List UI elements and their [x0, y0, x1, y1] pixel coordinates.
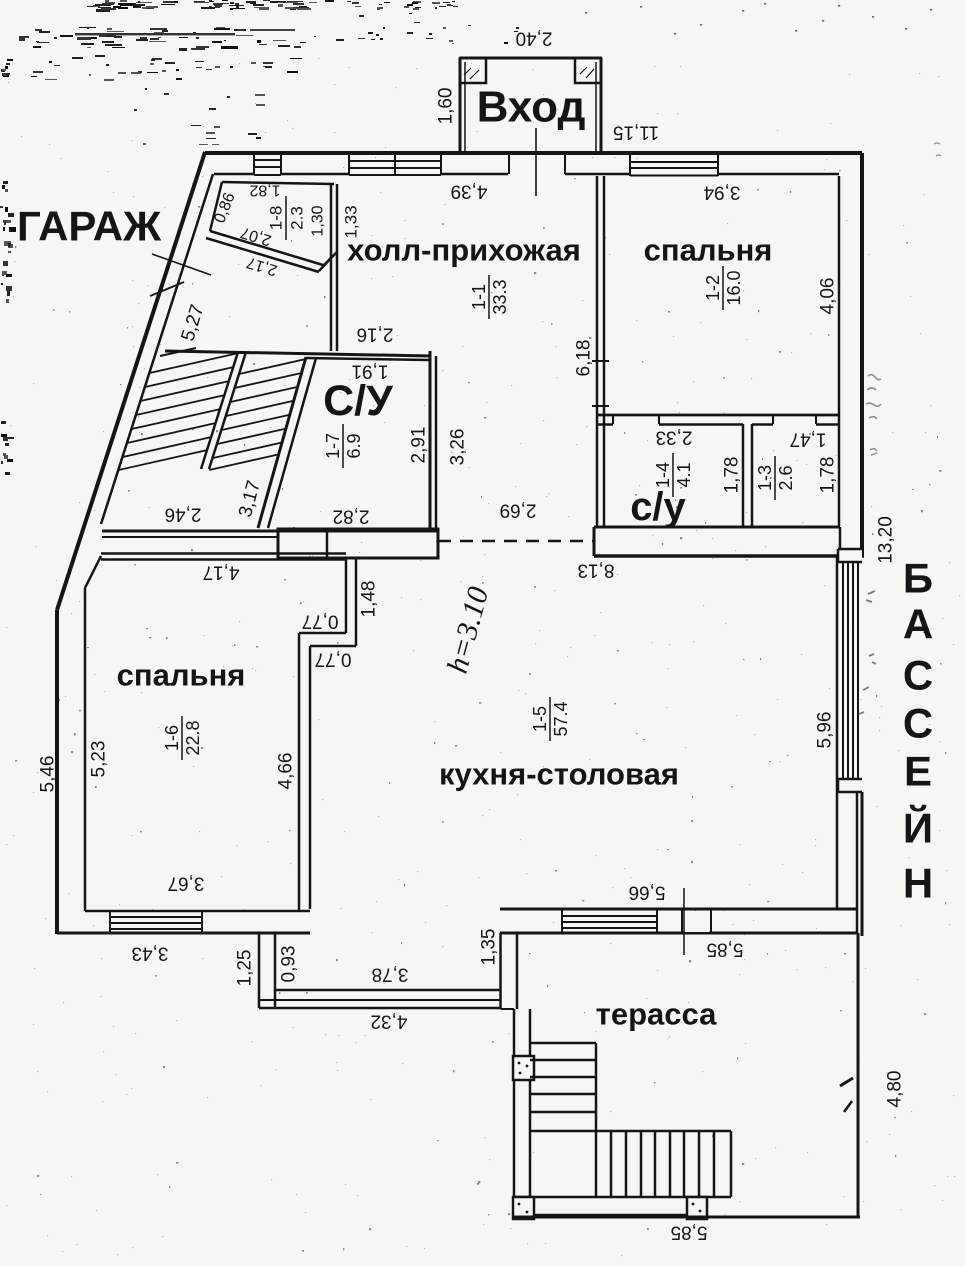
svg-text:1-2: 1-2: [703, 275, 723, 301]
svg-text:Б: Б: [903, 555, 933, 602]
svg-text:0,93: 0,93: [279, 946, 300, 983]
svg-text:4,06: 4,06: [818, 278, 839, 315]
svg-text:5,96: 5,96: [815, 712, 836, 749]
svg-text:1,91: 1,91: [352, 361, 389, 382]
svg-text:2,40: 2,40: [516, 28, 553, 49]
svg-text:0,77: 0,77: [315, 649, 352, 670]
svg-text:3,26: 3,26: [448, 429, 469, 466]
svg-text:Вход: Вход: [477, 83, 586, 132]
svg-text:4,39: 4,39: [451, 181, 488, 202]
svg-text:4.1: 4.1: [674, 462, 694, 487]
svg-text:4,17: 4,17: [203, 562, 240, 583]
svg-text:1,35: 1,35: [479, 929, 500, 966]
svg-text:1,82: 1,82: [249, 182, 280, 199]
svg-text:13,20: 13,20: [876, 516, 897, 564]
svg-text:С/У: С/У: [323, 377, 394, 425]
svg-text:4,80: 4,80: [885, 1071, 906, 1108]
svg-text:8,13: 8,13: [578, 560, 615, 581]
svg-text:1-1: 1-1: [469, 284, 489, 310]
svg-text:22.8: 22.8: [183, 720, 203, 755]
svg-text:1,48: 1,48: [359, 581, 380, 618]
svg-text:1,33: 1,33: [342, 205, 361, 238]
svg-text:1,78: 1,78: [818, 457, 839, 494]
svg-text:1,25: 1,25: [235, 950, 256, 987]
svg-text:2.6: 2.6: [776, 465, 796, 490]
svg-text:спальня: спальня: [644, 233, 773, 268]
svg-text:2,46: 2,46: [165, 504, 202, 525]
svg-text:1,78: 1,78: [722, 457, 743, 494]
svg-text:1-3: 1-3: [755, 465, 775, 491]
svg-text:11,15: 11,15: [613, 122, 659, 143]
svg-text:16.0: 16.0: [724, 270, 744, 305]
svg-text:5,85: 5,85: [671, 1222, 708, 1243]
svg-text:спальня: спальня: [117, 658, 246, 693]
svg-text:6,18: 6,18: [574, 340, 595, 377]
svg-text:1,47: 1,47: [790, 429, 827, 450]
svg-text:2,91: 2,91: [409, 427, 430, 464]
svg-text:терасса: терасса: [596, 997, 717, 1032]
svg-text:1-8: 1-8: [267, 206, 286, 231]
svg-text:2,16: 2,16: [357, 324, 394, 345]
svg-text:4,66: 4,66: [276, 753, 297, 790]
svg-text:2,33: 2,33: [656, 427, 693, 448]
svg-text:А: А: [903, 601, 933, 648]
svg-text:3,67: 3,67: [168, 873, 205, 894]
svg-text:1-7: 1-7: [323, 433, 343, 459]
svg-text:Н: Н: [903, 860, 933, 907]
svg-text:холл-прихожая: холл-прихожая: [347, 233, 581, 268]
svg-text:Е: Е: [904, 748, 932, 795]
svg-text:5,85: 5,85: [707, 939, 744, 960]
svg-text:6.9: 6.9: [344, 433, 364, 458]
svg-text:1-5: 1-5: [530, 706, 550, 732]
svg-text:4,32: 4,32: [371, 1011, 408, 1032]
svg-text:33.3: 33.3: [490, 279, 510, 314]
svg-text:0,77: 0,77: [302, 611, 339, 632]
svg-text:С: С: [903, 700, 933, 747]
svg-text:кухня-столовая: кухня-столовая: [439, 757, 679, 792]
svg-text:5,46: 5,46: [38, 756, 59, 793]
svg-text:5,23: 5,23: [89, 741, 110, 778]
svg-text:2.3: 2.3: [288, 206, 307, 230]
svg-text:Й: Й: [903, 804, 933, 852]
svg-text:1-4: 1-4: [653, 462, 673, 488]
svg-text:1,30: 1,30: [310, 205, 327, 236]
svg-text:С: С: [903, 652, 933, 699]
svg-text:3,78: 3,78: [372, 964, 409, 985]
svg-text:1-6: 1-6: [162, 725, 182, 751]
svg-text:2,82: 2,82: [333, 506, 370, 527]
svg-text:3,94: 3,94: [703, 182, 740, 203]
svg-text:5,66: 5,66: [629, 882, 666, 903]
svg-text:с/у: с/у: [630, 485, 686, 529]
svg-text:ГАРАЖ: ГАРАЖ: [17, 203, 162, 250]
svg-text:2,69: 2,69: [500, 500, 537, 521]
svg-text:3,43: 3,43: [132, 943, 169, 964]
svg-text:57.4: 57.4: [551, 701, 571, 736]
svg-text:1,60: 1,60: [436, 88, 457, 125]
